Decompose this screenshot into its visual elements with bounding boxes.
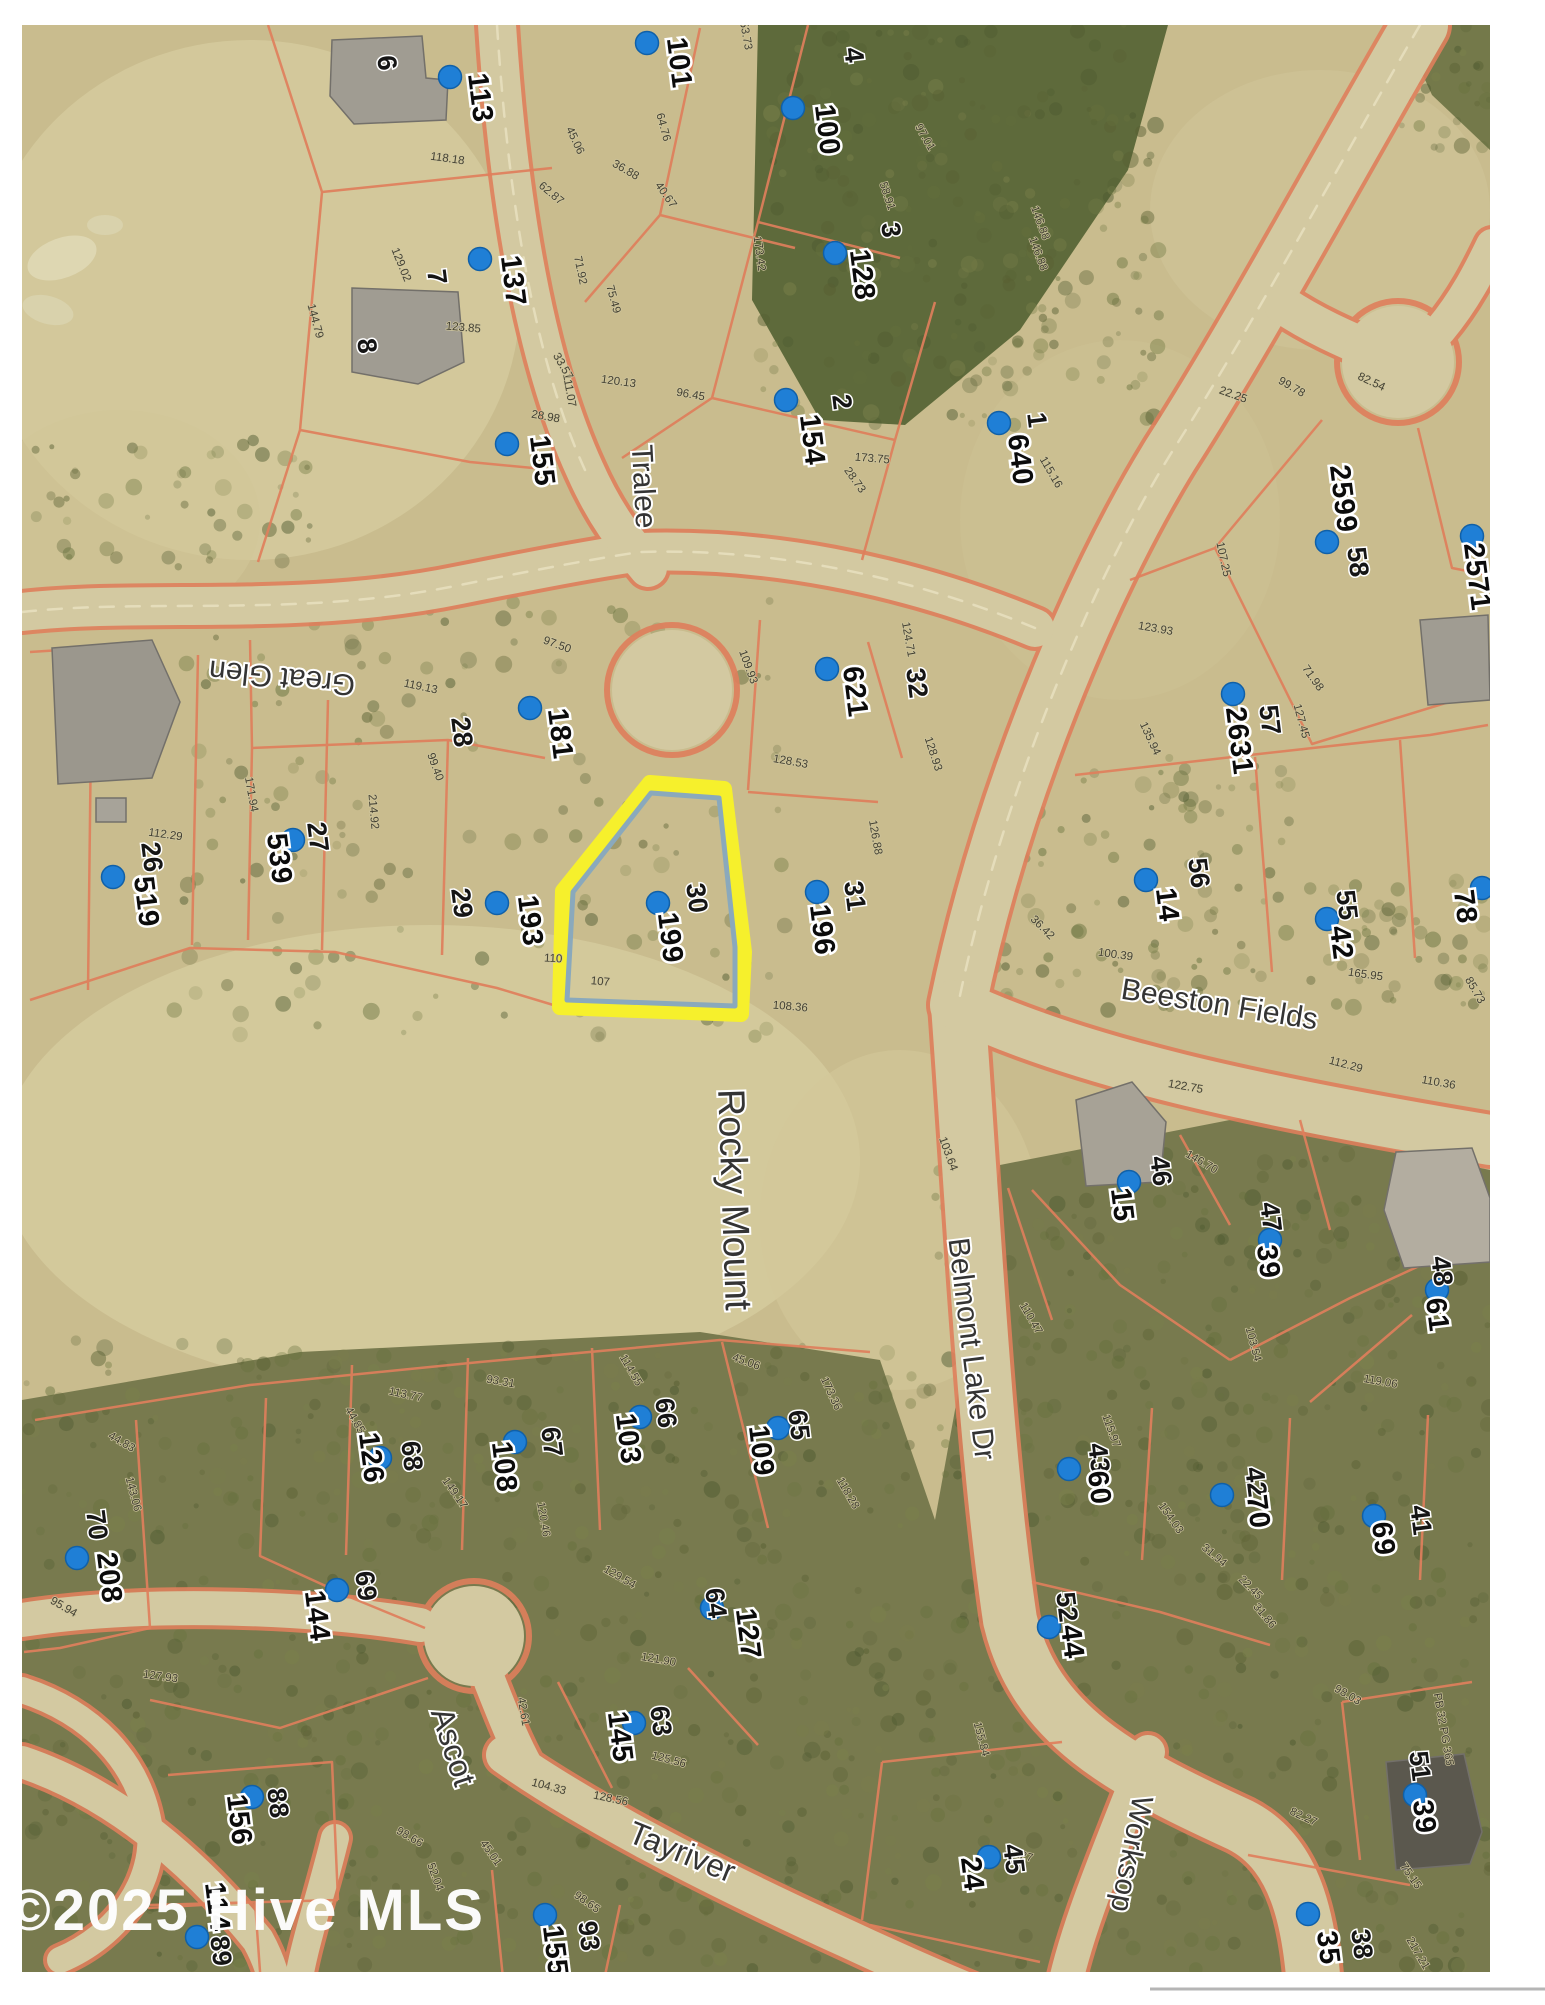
tree-texture-blob	[213, 635, 219, 641]
tree-texture-blob	[1217, 1584, 1233, 1600]
tree-texture-blob	[862, 113, 877, 128]
tree-texture-blob	[1273, 892, 1284, 903]
tree-texture-blob	[90, 1442, 96, 1448]
tree-texture-blob	[215, 479, 232, 496]
tree-texture-blob	[980, 304, 995, 319]
tree-texture-blob	[1324, 1404, 1330, 1410]
tree-texture-blob	[954, 293, 966, 305]
lot-number-label: 68	[395, 1439, 428, 1472]
tree-texture-blob	[901, 1472, 910, 1481]
tree-texture-blob	[510, 638, 517, 645]
tree-texture-blob	[1166, 1946, 1176, 1956]
lot-marker-dot	[486, 892, 509, 915]
tree-texture-blob	[931, 1808, 945, 1822]
tree-texture-blob	[761, 1543, 767, 1549]
parcel-number-label: 144	[298, 1588, 336, 1643]
tree-texture-blob	[1165, 754, 1173, 762]
tree-texture-blob	[704, 1422, 713, 1431]
tree-texture-blob	[951, 1617, 967, 1633]
tree-texture-blob	[1213, 1713, 1227, 1727]
tree-texture-blob	[1047, 249, 1057, 259]
tree-texture-blob	[1387, 1257, 1400, 1270]
tree-texture-blob	[357, 661, 366, 670]
tree-texture-blob	[556, 660, 562, 666]
tree-texture-blob	[846, 1621, 854, 1629]
tree-texture-blob	[376, 1348, 391, 1363]
parcel-number-label: 208	[90, 1550, 128, 1605]
tree-texture-blob	[1230, 1895, 1239, 1904]
tree-texture-blob	[379, 652, 391, 664]
tree-texture-blob	[402, 693, 416, 707]
tree-texture-blob	[1316, 1749, 1328, 1761]
tree-texture-blob	[312, 1737, 317, 1742]
tree-texture-blob	[669, 1929, 685, 1945]
tree-texture-blob	[291, 509, 303, 521]
tree-texture-blob	[286, 1685, 298, 1697]
tree-texture-blob	[854, 1392, 864, 1402]
tree-texture-blob	[1318, 1521, 1330, 1533]
tree-texture-blob	[1181, 1357, 1189, 1365]
tree-texture-blob	[1364, 1815, 1369, 1820]
tree-texture-blob	[501, 1012, 508, 1019]
tree-texture-blob	[538, 1412, 547, 1421]
tree-texture-blob	[362, 712, 373, 723]
tree-texture-blob	[1449, 63, 1460, 74]
tree-texture-blob	[476, 1463, 486, 1473]
tree-texture-blob	[1195, 1217, 1210, 1232]
tree-texture-blob	[1038, 848, 1046, 856]
tree-texture-blob	[1022, 366, 1032, 376]
tree-texture-blob	[1080, 1557, 1089, 1566]
tree-texture-blob	[984, 1815, 993, 1824]
tree-texture-blob	[53, 497, 64, 508]
tree-texture-blob	[24, 1380, 30, 1386]
tree-texture-blob	[1431, 144, 1438, 151]
tree-texture-blob	[272, 912, 284, 924]
tree-texture-blob	[1058, 826, 1065, 833]
tree-texture-blob	[343, 1643, 350, 1650]
tree-texture-blob	[1281, 777, 1296, 792]
tree-texture-blob	[1218, 1573, 1228, 1583]
tree-texture-blob	[1331, 998, 1342, 1009]
tree-texture-blob	[1293, 1249, 1302, 1258]
tree-texture-blob	[782, 1509, 790, 1517]
plat-map-image[interactable]: 153.7364.7636.8840.6745.06118.1862.87129…	[0, 0, 1545, 2000]
tree-texture-blob	[351, 1762, 368, 1779]
mls-listing-photo-page: 153.7364.7636.8840.6745.06118.1862.87129…	[0, 0, 1545, 2000]
tree-texture-blob	[176, 1338, 188, 1350]
tree-texture-blob	[955, 35, 968, 48]
tree-texture-blob	[885, 169, 894, 178]
tree-texture-blob	[256, 1375, 261, 1380]
tree-texture-blob	[585, 913, 598, 926]
tree-texture-blob	[1021, 894, 1036, 909]
tree-texture-blob	[879, 1345, 895, 1361]
tree-texture-blob	[1325, 1840, 1341, 1856]
tree-texture-blob	[1199, 800, 1212, 813]
tree-texture-blob	[420, 662, 433, 675]
tree-texture-blob	[541, 610, 557, 626]
tree-texture-blob	[427, 1690, 432, 1695]
tree-texture-blob	[1428, 1924, 1438, 1934]
tree-texture-blob	[1032, 1218, 1044, 1230]
tree-texture-blob	[1043, 952, 1053, 962]
tree-texture-blob	[701, 1954, 714, 1967]
tree-texture-blob	[988, 1676, 994, 1682]
tree-texture-blob	[1339, 1146, 1356, 1163]
tree-texture-blob	[899, 1625, 915, 1641]
tree-texture-blob	[522, 1409, 538, 1425]
tree-texture-blob	[273, 786, 288, 801]
tree-texture-blob	[1033, 1946, 1039, 1952]
tree-texture-blob	[1066, 367, 1080, 381]
tree-texture-blob	[748, 1030, 761, 1043]
tree-texture-blob	[1003, 253, 1018, 268]
lot-number-label: 32	[900, 666, 933, 699]
tree-texture-blob	[1248, 1894, 1264, 1910]
tree-texture-blob	[688, 1788, 704, 1804]
tree-texture-blob	[711, 1771, 724, 1784]
tree-texture-blob	[1081, 69, 1098, 86]
tree-texture-blob	[824, 1480, 834, 1490]
tree-texture-blob	[734, 1579, 740, 1585]
tree-texture-blob	[157, 1952, 162, 1957]
tree-texture-blob	[1218, 1393, 1224, 1399]
tree-texture-blob	[1217, 1682, 1232, 1697]
tree-texture-blob	[1269, 1772, 1277, 1780]
tree-texture-blob	[205, 1841, 220, 1856]
tree-texture-blob	[356, 1652, 368, 1664]
tree-texture-blob	[275, 554, 290, 569]
tree-texture-blob	[264, 798, 270, 804]
tree-texture-blob	[842, 191, 858, 207]
tree-texture-blob	[125, 1387, 140, 1402]
tree-texture-blob	[357, 1957, 372, 1972]
tree-texture-blob	[947, 409, 958, 420]
tree-texture-blob	[1094, 900, 1100, 906]
parcel-number-label: 154	[793, 412, 831, 467]
tree-texture-blob	[1438, 953, 1450, 965]
tree-texture-blob	[336, 1660, 350, 1674]
tree-texture-blob	[1066, 903, 1076, 913]
tree-texture-blob	[576, 1833, 591, 1848]
tree-texture-blob	[1060, 198, 1071, 209]
tree-texture-blob	[281, 521, 294, 534]
tree-texture-blob	[1466, 1376, 1476, 1386]
tree-texture-blob	[495, 610, 511, 626]
tree-texture-blob	[150, 1530, 165, 1545]
lot-number-label: 52	[1050, 1590, 1083, 1623]
tree-texture-blob	[580, 773, 591, 784]
tree-texture-blob	[375, 1727, 388, 1740]
tree-texture-blob	[1124, 1267, 1131, 1274]
tree-texture-blob	[1216, 784, 1221, 789]
tree-texture-blob	[352, 800, 362, 810]
tree-texture-blob	[892, 1815, 899, 1822]
tree-texture-blob	[1088, 199, 1104, 215]
tree-texture-blob	[931, 1768, 940, 1777]
lot-number-label: 47	[1254, 1200, 1287, 1233]
tree-texture-blob	[1063, 1818, 1069, 1824]
tree-texture-blob	[1333, 1226, 1349, 1242]
tree-texture-blob	[296, 1429, 302, 1435]
tree-texture-blob	[928, 259, 937, 268]
tree-texture-blob	[63, 547, 75, 559]
tree-texture-blob	[256, 1357, 270, 1371]
tree-texture-blob	[1222, 1870, 1229, 1877]
tree-texture-blob	[1438, 126, 1450, 138]
tree-texture-blob	[1134, 1366, 1147, 1379]
tree-texture-blob	[411, 1370, 422, 1381]
tree-texture-blob	[1119, 1459, 1130, 1470]
parcel-number-label: 156	[220, 1792, 258, 1847]
tree-texture-blob	[854, 340, 860, 346]
tree-texture-blob	[1454, 138, 1470, 154]
tree-texture-blob	[1320, 1592, 1335, 1607]
tree-texture-blob	[1161, 1279, 1166, 1284]
tree-texture-blob	[255, 447, 270, 462]
tree-texture-blob	[1197, 850, 1204, 857]
lot-number-label: 55	[1330, 888, 1363, 921]
tree-texture-blob	[1019, 249, 1027, 257]
tree-texture-blob	[1148, 943, 1158, 953]
tree-texture-blob	[772, 341, 778, 347]
tree-texture-blob	[96, 1339, 113, 1356]
tree-texture-blob	[1082, 814, 1091, 823]
tree-texture-blob	[502, 1938, 516, 1952]
tree-texture-blob	[540, 1675, 552, 1687]
tree-texture-blob	[1056, 276, 1061, 281]
tree-texture-blob	[1361, 1405, 1368, 1412]
tree-texture-blob	[819, 1480, 824, 1485]
tree-texture-blob	[937, 37, 943, 43]
lot-marker-dot	[816, 658, 839, 681]
tree-texture-blob	[810, 1952, 821, 1963]
lot-number-label: 56	[1182, 856, 1215, 889]
parcel-number-label: 35	[1310, 1929, 1346, 1967]
tree-texture-blob	[734, 1382, 748, 1396]
tree-texture-blob	[1107, 178, 1122, 193]
tree-texture-blob	[324, 1695, 337, 1708]
tree-texture-blob	[1431, 1568, 1446, 1583]
tree-texture-blob	[1166, 1900, 1181, 1915]
tree-texture-blob	[840, 1880, 853, 1893]
tree-texture-blob	[301, 1725, 312, 1736]
tree-texture-blob	[604, 1667, 620, 1683]
tree-texture-blob	[1233, 1554, 1244, 1565]
tree-texture-blob	[182, 1523, 188, 1529]
tree-texture-blob	[1037, 1787, 1048, 1798]
tree-texture-blob	[784, 1876, 793, 1885]
tree-texture-blob	[1410, 1596, 1423, 1609]
tree-texture-blob	[122, 1699, 132, 1709]
tree-texture-blob	[679, 1545, 688, 1554]
tree-texture-blob	[375, 1740, 380, 1745]
tree-texture-blob	[1107, 114, 1119, 126]
tree-texture-blob	[664, 1371, 672, 1379]
tree-texture-blob	[145, 515, 150, 520]
tree-texture-blob	[1135, 126, 1146, 137]
tree-texture-blob	[1071, 1214, 1076, 1219]
tree-texture-blob	[1374, 1299, 1385, 1310]
tree-texture-blob	[875, 1672, 884, 1681]
tree-texture-blob	[931, 1193, 939, 1201]
tree-texture-blob	[1466, 81, 1472, 87]
lot-marker-dot	[782, 97, 805, 120]
tree-texture-blob	[885, 1868, 892, 1875]
tree-texture-blob	[745, 1542, 761, 1558]
parcel-number-label: 60	[1081, 1469, 1117, 1507]
tree-texture-blob	[1359, 1673, 1371, 1685]
tree-texture-blob	[905, 1398, 916, 1409]
tree-texture-blob	[951, 333, 958, 340]
tree-texture-blob	[59, 1416, 74, 1431]
tree-texture-blob	[1149, 1315, 1164, 1330]
tree-texture-blob	[905, 1440, 915, 1450]
tree-texture-blob	[265, 1757, 274, 1766]
tree-texture-blob	[152, 1415, 158, 1421]
tree-texture-blob	[1114, 202, 1121, 209]
tree-texture-blob	[769, 365, 778, 374]
tree-texture-blob	[1113, 49, 1127, 63]
tree-texture-blob	[959, 1682, 968, 1691]
tree-texture-blob	[1187, 1504, 1200, 1517]
lot-number-label: 51	[1403, 1749, 1436, 1782]
tree-texture-blob	[1062, 1156, 1071, 1165]
tree-texture-blob	[70, 469, 80, 479]
tree-texture-blob	[1084, 1217, 1096, 1229]
tree-texture-blob	[1437, 1362, 1445, 1370]
tree-texture-blob	[1224, 1255, 1235, 1266]
tree-texture-blob	[572, 1424, 581, 1433]
tree-texture-blob	[45, 1386, 55, 1396]
dimension-label: 107	[590, 975, 610, 989]
tree-texture-blob	[1182, 1252, 1188, 1258]
parcel-number-label: 39	[1250, 1243, 1286, 1281]
tree-texture-blob	[1425, 1637, 1435, 1647]
tree-texture-blob	[1021, 1410, 1027, 1416]
parcel-number-label: 39	[1406, 1798, 1442, 1836]
tree-texture-blob	[275, 996, 291, 1012]
tree-texture-blob	[232, 1027, 247, 1042]
tree-texture-blob	[341, 1768, 353, 1780]
tree-texture-blob	[1428, 1463, 1435, 1470]
tree-texture-blob	[898, 1523, 903, 1528]
tree-texture-blob	[363, 1003, 380, 1020]
tree-texture-blob	[704, 1481, 721, 1498]
lot-number-label: 66	[649, 1396, 682, 1429]
tree-texture-blob	[110, 1675, 123, 1688]
tree-texture-blob	[175, 563, 182, 570]
tree-texture-blob	[1448, 1456, 1465, 1473]
tree-texture-blob	[1185, 1665, 1194, 1674]
lot-number-label: 46	[1144, 1154, 1177, 1187]
tree-texture-blob	[1065, 1304, 1076, 1315]
tree-texture-blob	[1335, 1580, 1349, 1594]
tree-texture-blob	[935, 1252, 943, 1260]
tree-texture-blob	[289, 1634, 296, 1641]
tree-texture-blob	[916, 1799, 930, 1813]
tree-texture-blob	[1351, 1460, 1360, 1469]
tree-texture-blob	[1173, 1742, 1180, 1749]
tree-texture-blob	[943, 1660, 958, 1675]
lot-number-label: 63	[644, 1704, 677, 1737]
tree-texture-blob	[839, 1785, 849, 1795]
tree-texture-blob	[733, 1509, 749, 1525]
parcel-number-label: 128	[843, 247, 881, 302]
lot-marker-dot	[1297, 1903, 1320, 1926]
tree-texture-blob	[737, 1739, 753, 1755]
tree-texture-blob	[265, 1514, 279, 1528]
tree-texture-blob	[718, 1761, 726, 1769]
tree-texture-blob	[162, 551, 176, 565]
tree-texture-blob	[521, 1688, 528, 1695]
tree-texture-blob	[968, 323, 976, 331]
tree-texture-blob	[953, 197, 964, 208]
tree-texture-blob	[1124, 1551, 1130, 1557]
tree-texture-blob	[1219, 1642, 1235, 1658]
tree-texture-blob	[1243, 1648, 1253, 1658]
tree-texture-blob	[928, 39, 935, 46]
tree-texture-blob	[1021, 227, 1031, 237]
tree-texture-blob	[233, 1006, 249, 1022]
tree-texture-blob	[1388, 1302, 1394, 1308]
tree-texture-blob	[339, 832, 345, 838]
tree-texture-blob	[384, 863, 396, 875]
tree-texture-blob	[1183, 1192, 1189, 1198]
tree-texture-blob	[1452, 934, 1468, 950]
tree-texture-blob	[1116, 331, 1121, 336]
tree-texture-blob	[630, 1630, 646, 1646]
lot-number-label: 41	[1404, 1503, 1437, 1536]
tree-texture-blob	[882, 1375, 893, 1386]
tree-texture-blob	[386, 1513, 400, 1527]
tree-texture-blob	[167, 1002, 182, 1017]
street-name-label: Rocky Mount	[709, 1088, 759, 1312]
tree-texture-blob	[226, 1394, 233, 1401]
tree-texture-blob	[1074, 179, 1081, 186]
tree-texture-blob	[475, 951, 489, 965]
tree-texture-blob	[659, 1528, 676, 1545]
tree-texture-blob	[625, 1860, 630, 1865]
tree-texture-blob	[1201, 1208, 1208, 1215]
tree-texture-blob	[1460, 1616, 1471, 1627]
tree-texture-blob	[370, 1421, 375, 1426]
tree-texture-blob	[620, 865, 631, 876]
lot-marker-dot	[1222, 683, 1245, 706]
tree-texture-blob	[651, 1440, 665, 1454]
lot-number-label: 58	[1341, 545, 1374, 578]
tree-texture-blob	[1227, 1434, 1241, 1448]
tree-texture-blob	[652, 1545, 666, 1559]
tree-texture-blob	[98, 493, 114, 509]
tree-texture-blob	[526, 611, 533, 618]
tree-texture-blob	[611, 1504, 628, 1521]
tree-texture-blob	[1225, 1402, 1239, 1416]
tree-texture-blob	[1312, 1543, 1320, 1551]
tree-texture-blob	[616, 1497, 624, 1505]
tree-texture-blob	[766, 597, 774, 605]
tree-texture-blob	[1300, 1730, 1316, 1746]
tree-texture-blob	[133, 1712, 140, 1719]
tree-texture-blob	[628, 1918, 635, 1925]
tree-texture-blob	[412, 1011, 422, 1021]
tree-texture-blob	[1303, 1478, 1315, 1490]
parcel-number-label: 103	[609, 1411, 647, 1466]
tree-texture-blob	[1359, 1354, 1374, 1369]
tree-texture-blob	[305, 975, 321, 991]
tree-texture-blob	[211, 446, 224, 459]
